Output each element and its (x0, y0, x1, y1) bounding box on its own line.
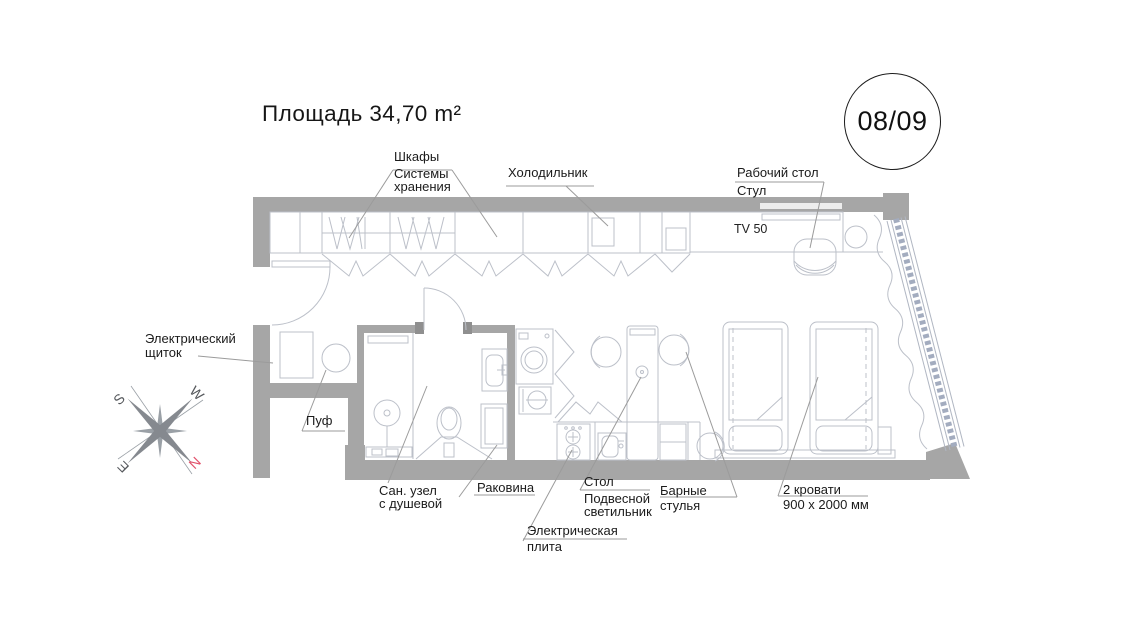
floor-plan-page: S W E N Площадь 34,70 m² 08/09 TV 50 Шка… (0, 0, 1143, 644)
label-desk: Рабочий стол Стул (737, 165, 819, 198)
tv-label: TV 50 (734, 222, 767, 236)
label-bathroom: Сан. узел с душевой (379, 485, 442, 510)
unit-number-badge: 08/09 (844, 73, 941, 170)
desk-area (690, 203, 883, 275)
toilet (437, 407, 461, 439)
label-fridge: Холодильник (508, 166, 587, 179)
compass-east: E (114, 458, 132, 476)
kitchen (516, 329, 700, 460)
label-sink: Раковина (477, 481, 534, 494)
bar-table (627, 326, 658, 460)
shower-head (374, 400, 400, 426)
desk-chair (794, 239, 836, 275)
compass-south: S (110, 390, 128, 408)
walls (253, 193, 970, 480)
window-glazing (887, 217, 964, 452)
bifold-door-symbols (322, 254, 690, 422)
label-electrical-panel: Электрический щиток (145, 332, 236, 360)
label-pouf: Пуф (306, 414, 332, 427)
entry-door (272, 261, 330, 325)
curtain (874, 215, 927, 449)
label-wardrobe: Шкафы Системы хранения (394, 150, 451, 193)
label-bar-stools: Барные стулья (660, 484, 707, 512)
compass-rose: S W E N (110, 383, 208, 476)
hall-items (280, 332, 350, 378)
label-table: Стол Подвесной светильник (584, 475, 652, 518)
bathroom (366, 288, 507, 459)
beds (715, 322, 895, 458)
pouf (322, 344, 350, 372)
label-beds: 2 кровати 900 x 2000 мм (783, 483, 869, 511)
bed-2 (810, 322, 878, 454)
wardrobe-cabinets (270, 212, 690, 253)
electrical-panel (280, 332, 313, 378)
pendant-light (636, 366, 648, 378)
label-stove: Электрическая плита (527, 524, 618, 553)
page-title: Площадь 34,70 m² (262, 101, 461, 127)
